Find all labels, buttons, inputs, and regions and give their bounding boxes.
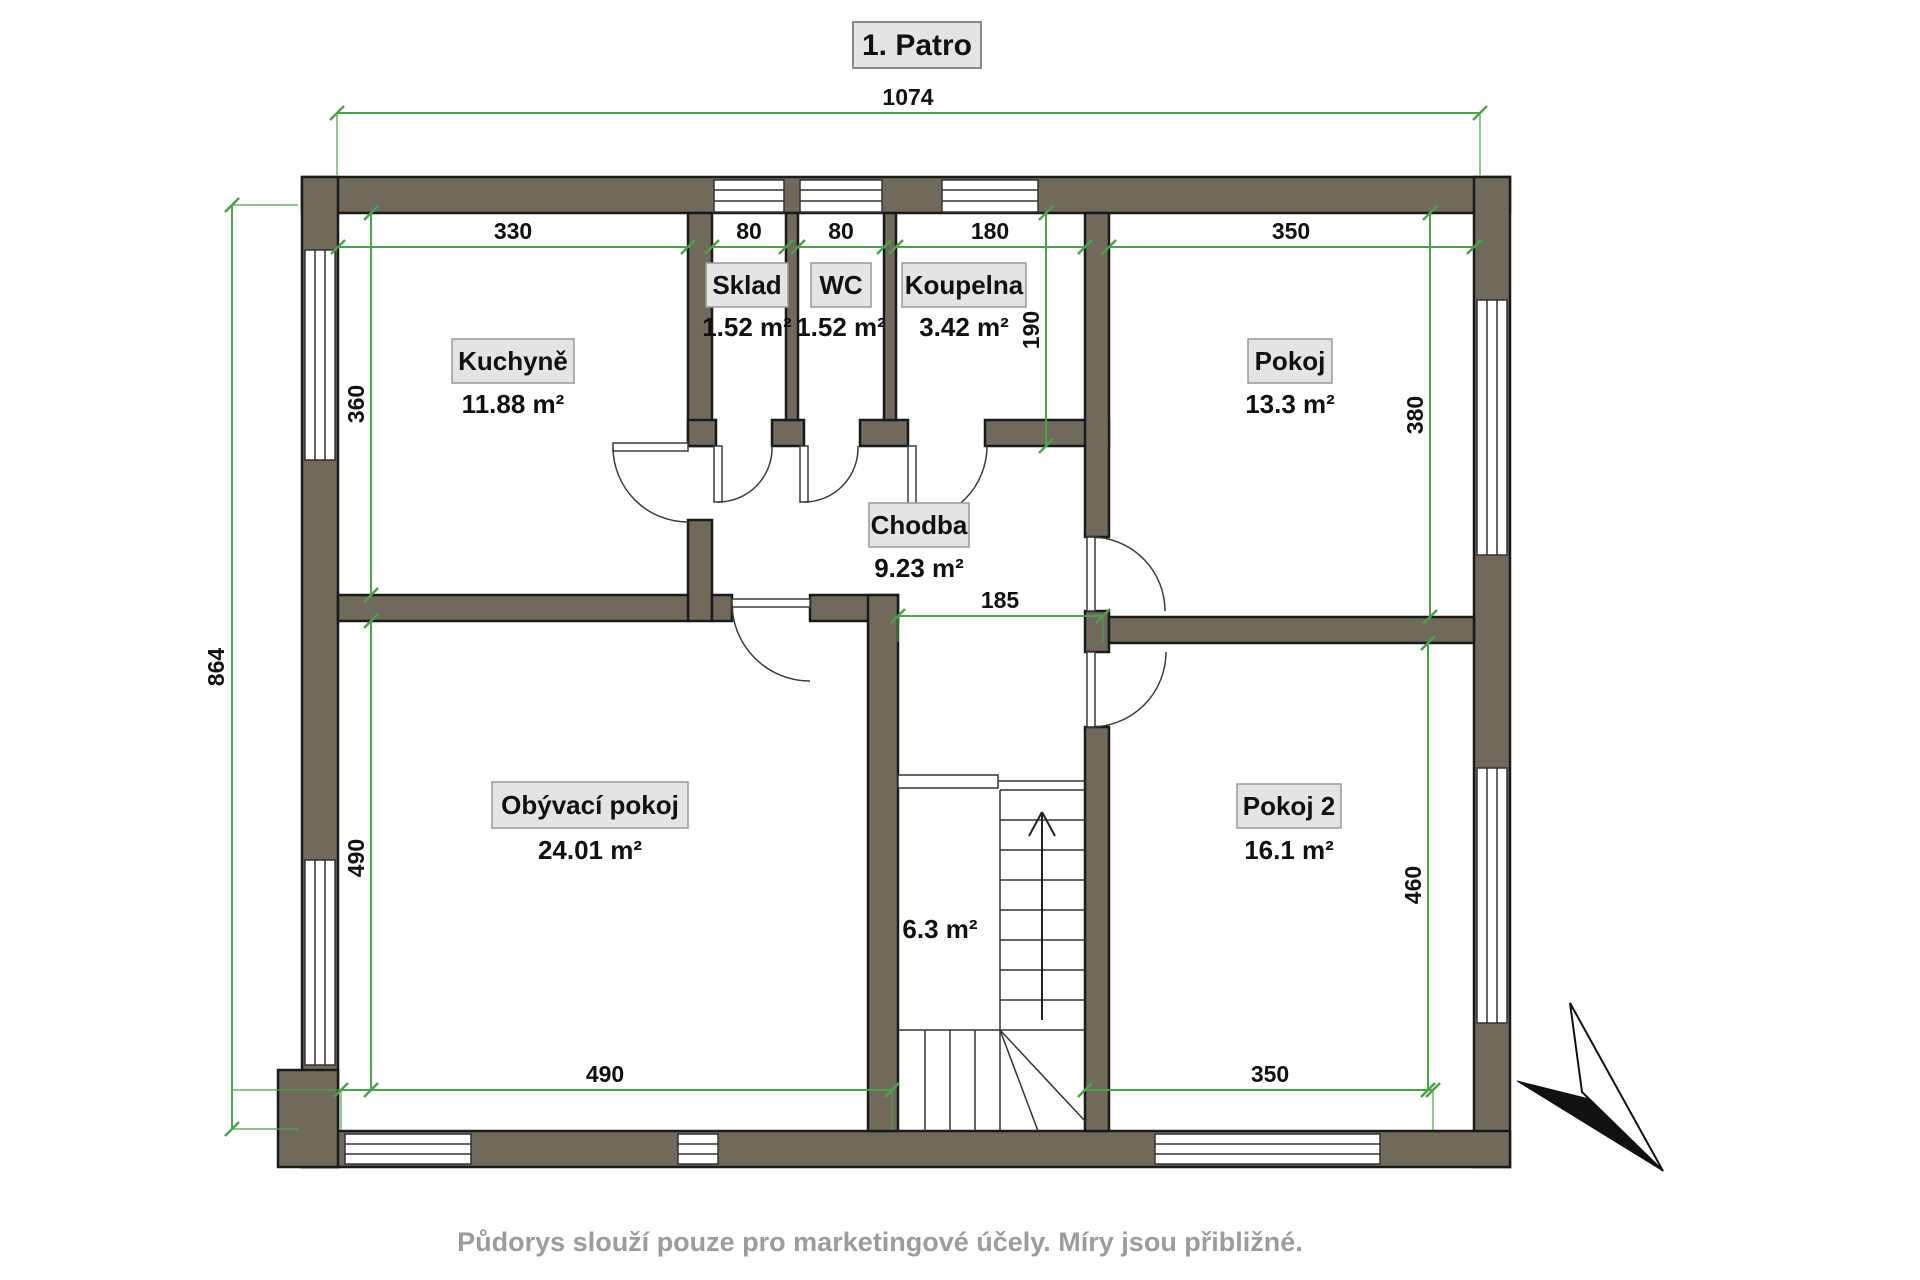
room-area: 24.01 m² [538,835,642,865]
dim-kitchen-height: 360 [343,385,369,423]
room-name: Koupelna [905,270,1024,300]
walls [278,177,1510,1167]
wall-segment [1109,617,1474,643]
door-living-room [732,599,810,681]
wall-segment [338,595,688,621]
window [1477,768,1507,1023]
dim-sklad-width: 80 [736,218,762,244]
room-name: Chodba [871,510,968,540]
room-label-sklad: Sklad 1.52 m² [702,263,792,342]
dim-pokoj-width: 350 [1272,218,1310,244]
wall-segment [1085,727,1109,1131]
plan-title: 1. Patro [853,22,981,68]
room-label-wc: WC 1.52 m² [796,263,886,342]
window [1155,1134,1380,1164]
window [678,1134,718,1164]
window [1477,300,1507,555]
room-area: 9.23 m² [874,553,964,583]
wall-segment [712,595,732,621]
door-wc [800,446,858,502]
staircase [898,775,1085,1131]
room-name: Pokoj 2 [1243,791,1335,821]
window [942,180,1038,212]
wall-segment [868,595,898,1131]
room-label-kuchyne: Kuchyně 11.88 m² [452,339,574,419]
dim-living-width: 490 [586,1061,624,1087]
room-name: WC [819,270,863,300]
floor-plan: 1074 330 80 80 180 350 864 360 190 380 1… [0,0,1920,1280]
room-name: Sklad [712,270,781,300]
dim-living-height: 490 [343,839,369,877]
room-label-pokoj2: Pokoj 2 16.1 m² [1237,784,1341,865]
window [305,250,335,460]
stairs-up-arrow-icon [1029,812,1055,1020]
room-label-chodba: Chodba 9.23 m² [869,503,969,583]
room-area: 11.88 m² [462,389,565,419]
room-label-pokoj: Pokoj 13.3 m² [1245,339,1335,419]
dim-koupelna-height: 190 [1018,311,1044,349]
room-area: 1.52 m² [702,312,792,342]
wall-segment [772,420,804,446]
window [305,860,335,1065]
footer-disclaimer: Půdorys slouží pouze pro marketingové úč… [457,1227,1303,1257]
room-area: 16.1 m² [1244,835,1334,865]
staircase-area: 6.3 m² [902,914,977,944]
room-area: 3.42 m² [919,312,1009,342]
window [800,180,882,212]
north-arrow-icon [1517,1003,1663,1171]
wall-segment [302,177,1510,213]
page-title: 1. Patro [862,29,972,62]
windows [305,180,1507,1164]
door-kitchen [613,443,688,522]
dim-wc-width: 80 [828,218,854,244]
window [345,1134,471,1164]
door-pokoj [1087,537,1165,611]
floor-plan-page: 1074 330 80 80 180 350 864 360 190 380 1… [0,0,1920,1280]
room-area: 1.52 m² [796,312,886,342]
dim-total-width: 1074 [882,84,933,110]
door-pokoj2 [1087,652,1166,727]
wall-segment [278,1070,338,1167]
room-label-koupelna: Koupelna 3.42 m² [902,263,1026,342]
dim-pokoj2-height: 460 [1400,866,1426,904]
dim-kitchen-width: 330 [494,218,532,244]
dimension-labels: 1074 330 80 80 180 350 864 360 190 380 1… [203,84,1428,1087]
window [714,180,784,212]
wall-segment [1085,213,1109,537]
wall-segment [688,420,716,446]
wall-segment [688,520,712,621]
dim-koupelna-width: 180 [971,218,1009,244]
room-name: Kuchyně [458,346,568,376]
wall-segment [860,420,908,446]
room-label-obyvaci-pokoj: Obývací pokoj 24.01 m² [492,782,688,865]
room-name: Obývací pokoj [501,790,679,820]
door-sklad [714,446,772,502]
dim-pokoj-height: 380 [1402,396,1428,434]
room-name: Pokoj [1255,346,1326,376]
dim-total-height: 864 [203,648,229,687]
dim-hall-width: 185 [981,587,1020,613]
room-area: 13.3 m² [1245,389,1335,419]
wall-segment [1085,611,1109,652]
dim-pokoj2-width: 350 [1251,1061,1289,1087]
